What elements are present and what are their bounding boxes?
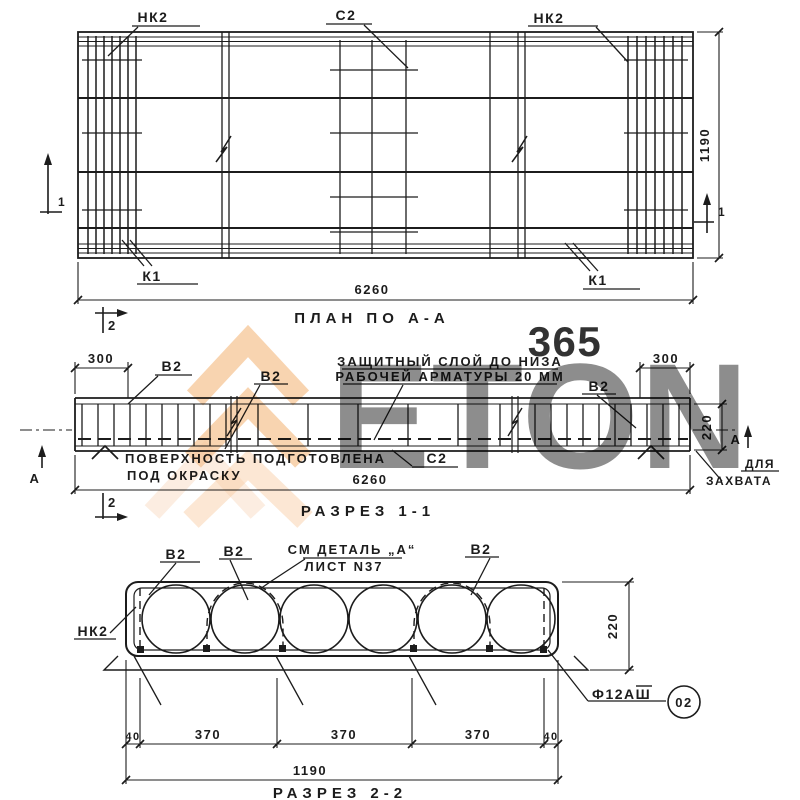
hollow-core-2 <box>211 585 279 653</box>
sec1-cut2-arrowhead <box>117 513 128 521</box>
plan-cut2-arrowhead <box>117 309 128 317</box>
plan-transverse-bars <box>222 32 525 258</box>
hollow-core-5 <box>418 585 486 653</box>
sec2-panel-outline <box>126 582 558 656</box>
sec1-label-b2-1: В2 <box>162 358 183 374</box>
plan-label-k1-left: К1 <box>142 268 161 284</box>
hollow-core-4 <box>349 585 417 653</box>
plan-right-mesh-horizontals <box>624 60 688 210</box>
sec2-dim-width: 1190 <box>293 763 327 778</box>
sec1-view-a-left-arrowhead <box>38 445 46 457</box>
sec2-dimension-ticks <box>122 578 633 784</box>
plan-right-mesh-verticals <box>628 36 682 254</box>
sec2-title: РАЗРЕЗ 2-2 <box>273 785 407 800</box>
plan-label-nk2-right: НК2 <box>534 10 565 26</box>
sec2-label-b2-1: В2 <box>166 546 187 562</box>
sec2-dim-span-1: 370 <box>195 727 221 742</box>
plan-cut1-left-arrowhead <box>44 153 52 165</box>
watermark: ETON 365 <box>152 318 750 520</box>
sec2-rebar-leader-lines <box>134 650 666 705</box>
sec2-note-detail-line2: ЛИСТ N37 <box>305 559 384 574</box>
sec2-dim-edge-left: 40 <box>125 731 140 743</box>
sec2-hollow-cores <box>142 585 555 653</box>
plan-title: ПЛАН ПО А-А <box>294 310 449 327</box>
hollow-core-6 <box>487 585 555 653</box>
plan-label-leaders <box>108 24 640 289</box>
sec2-dim-depth: 220 <box>605 613 620 639</box>
sec2-label-b2-2: В2 <box>224 543 245 559</box>
sec1-dim-end-left: 300 <box>88 351 114 366</box>
hollow-core-1 <box>142 585 210 653</box>
sec2-position-badge: 02 <box>675 695 692 710</box>
plan-cut1-label-right: 1 <box>718 205 726 219</box>
plan-dim-length: 6260 <box>355 282 390 297</box>
sec2-anchor-squares <box>137 645 547 653</box>
plan-view: НК2 С2 НК2 К1 К1 6260 1190 1 1 2 ПЛАН ПО… <box>40 7 726 333</box>
blueprint-page: НК2 С2 НК2 К1 К1 6260 1190 1 1 2 ПЛАН ПО… <box>0 0 800 800</box>
sec2-bottom-lip <box>104 656 588 670</box>
plan-cut1-right-arrowhead <box>703 193 711 205</box>
sec2-label-nk2: НК2 <box>78 623 109 639</box>
plan-center-mesh <box>330 40 418 254</box>
plan-label-nk2-left: НК2 <box>138 9 169 25</box>
section-2-2-view: В2 В2 В2 НК2 СМ ДЕТАЛЬ „А“ ЛИСТ N37 Ф12А… <box>74 541 700 800</box>
plan-cut2-label: 2 <box>108 318 117 333</box>
plan-dimension-lines <box>78 32 723 304</box>
sec1-view-a-label-left: А <box>30 471 41 486</box>
hollow-core-3 <box>280 585 348 653</box>
plan-cut1-label-left: 1 <box>58 195 66 209</box>
plan-longitudinal-bars <box>78 98 693 228</box>
plan-dim-width: 1190 <box>697 128 712 162</box>
sec2-label-b2-3: В2 <box>471 541 492 557</box>
technical-drawing: НК2 С2 НК2 К1 К1 6260 1190 1 1 2 ПЛАН ПО… <box>0 0 800 800</box>
watermark-digits: 365 <box>528 318 603 365</box>
sec2-dim-span-3: 370 <box>465 727 491 742</box>
plan-label-k1-right: К1 <box>588 272 607 288</box>
sec1-title: РАЗРЕЗ 1-1 <box>301 503 435 520</box>
sec2-dim-edge-right: 40 <box>543 731 558 743</box>
sec2-dim-span-2: 370 <box>331 727 357 742</box>
sec2-rebar-spec: Ф12АШ <box>592 686 651 702</box>
plan-left-mesh-verticals <box>88 36 136 254</box>
plan-panel-outline <box>78 32 693 258</box>
sec2-note-detail-line1: СМ ДЕТАЛЬ „А“ <box>288 542 417 557</box>
plan-label-c2: С2 <box>336 7 357 23</box>
sec1-cut2-label: 2 <box>108 495 117 510</box>
